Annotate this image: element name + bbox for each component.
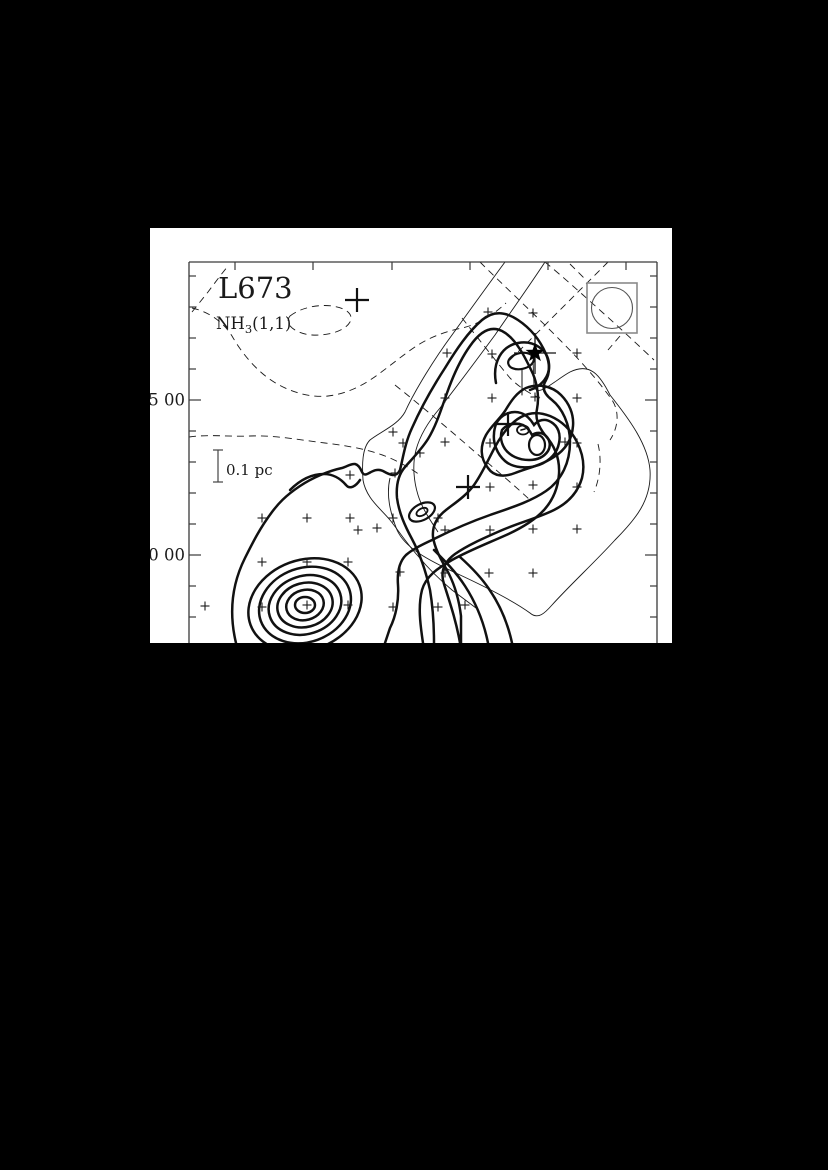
molecule-label: NH3(1,1): [216, 314, 291, 336]
y-axis-label: 5 00: [150, 391, 185, 410]
thick-contour-peak-blob: [529, 435, 545, 455]
contour-map-figure: 0.1 pc L673 NH3(1,1) 5 000 00: [150, 228, 672, 643]
y-axis-tick-labels: 5 000 00: [150, 391, 185, 565]
thin-contour-band-west: [363, 262, 505, 608]
dashed-contour-se-peak: [594, 444, 600, 492]
scale-bar: [213, 450, 223, 482]
sw-core-rings: [235, 543, 375, 643]
y-axis-label: 0 00: [150, 546, 185, 565]
thick-contour-peak-dot-mark: [521, 429, 525, 430]
beam-box: [587, 283, 637, 333]
beam-indicator: [587, 283, 637, 333]
dashed-contour-beam-nw: [570, 264, 584, 278]
dashed-contour-ne3: [508, 262, 608, 362]
document-page: { "figure": { "title": "L673", "subtitle…: [0, 0, 828, 1170]
reference-plus-markers: [345, 288, 520, 499]
dashed-contour-beam-sw: [608, 336, 620, 350]
arm-blob-inner: [415, 506, 429, 518]
figure-title: L673: [218, 271, 293, 305]
dashed-contour-horizontal: [189, 436, 420, 475]
thick-contours: [232, 313, 583, 643]
scale-bar-label: 0.1 pc: [226, 461, 273, 479]
dashed-contour-blob: [288, 305, 351, 335]
beam-circle-icon: [592, 288, 633, 329]
dashed-contour-ne1: [480, 262, 617, 440]
thin-contour-band-east: [414, 262, 545, 532]
arm-blob-outer: [406, 498, 438, 525]
contour-map-canvas: 0.1 pc L673 NH3(1,1) 5 000 00: [150, 228, 672, 643]
